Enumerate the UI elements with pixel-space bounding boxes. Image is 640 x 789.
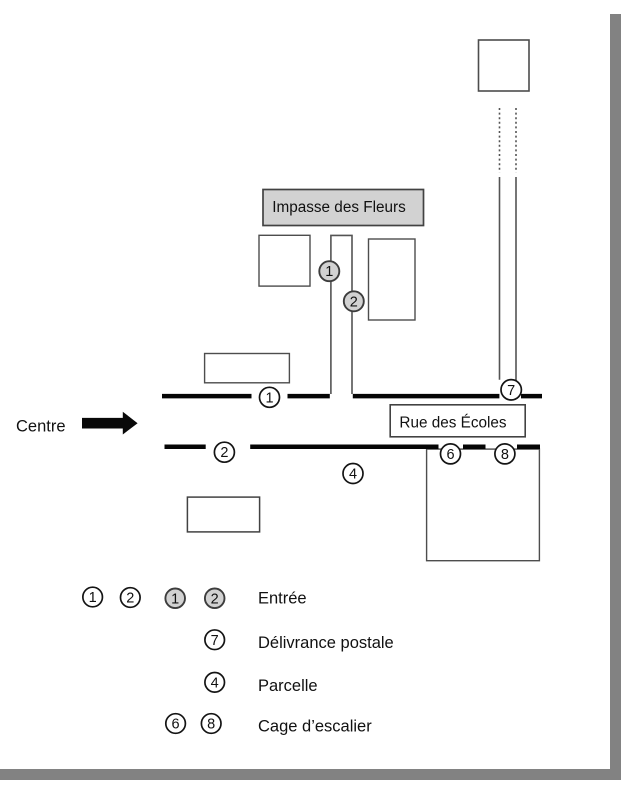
svg-text:8: 8	[207, 717, 215, 733]
svg-text:Parcelle: Parcelle	[258, 677, 318, 695]
svg-text:Entrée: Entrée	[258, 590, 307, 608]
svg-text:4: 4	[349, 467, 357, 483]
svg-text:6: 6	[172, 717, 180, 733]
svg-text:1: 1	[89, 590, 97, 606]
svg-text:Cage d’escalier: Cage d’escalier	[258, 718, 372, 736]
svg-text:Délivrance postale: Délivrance postale	[258, 634, 394, 652]
svg-text:7: 7	[211, 633, 219, 649]
svg-text:Centre: Centre	[16, 417, 66, 435]
svg-text:4: 4	[211, 675, 219, 691]
svg-text:2: 2	[211, 591, 219, 607]
svg-text:Impasse des Fleurs: Impasse des Fleurs	[272, 199, 406, 216]
svg-text:2: 2	[350, 294, 358, 310]
svg-text:8: 8	[501, 447, 509, 463]
svg-text:1: 1	[325, 264, 333, 280]
svg-text:2: 2	[220, 445, 228, 461]
svg-text:7: 7	[507, 383, 515, 399]
svg-text:2: 2	[126, 591, 134, 607]
svg-text:1: 1	[265, 390, 273, 406]
svg-text:Rue des Écoles: Rue des Écoles	[399, 414, 506, 431]
svg-text:6: 6	[446, 447, 454, 463]
svg-text:1: 1	[171, 591, 179, 607]
